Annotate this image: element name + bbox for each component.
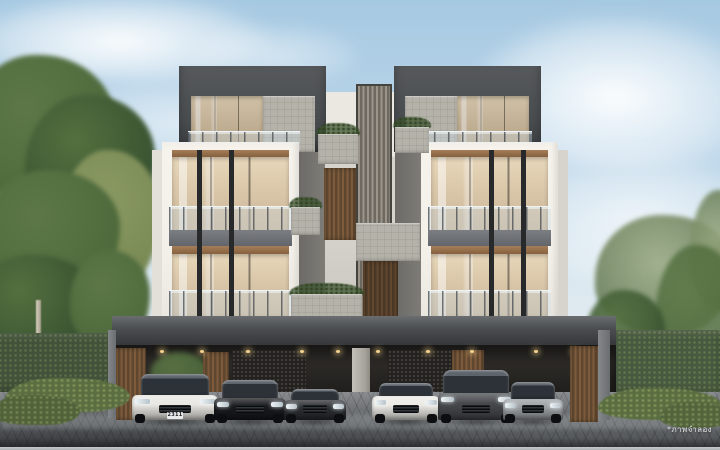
headlight-icon (441, 397, 454, 402)
car-wheel (135, 414, 145, 423)
car-grille (393, 405, 419, 413)
car-wheel (273, 414, 283, 423)
car-grille (462, 405, 491, 413)
car-1-white-luxury-sedan: 2311 (132, 374, 218, 422)
headlight-icon (200, 399, 215, 404)
car-wheel (375, 414, 385, 423)
headlight-icon (375, 400, 387, 405)
car-2-black-sedan (214, 380, 286, 422)
headlight-icon (550, 403, 560, 408)
watermark-text: *ภาพจำลอง (667, 423, 712, 436)
car-wheel (286, 414, 296, 423)
car-wheel (441, 414, 451, 423)
car-grille (236, 405, 263, 413)
car-wheel (217, 414, 227, 423)
car-grille (522, 405, 545, 413)
headlight-icon (286, 404, 297, 409)
car-grille (303, 405, 327, 413)
headlight-icon (271, 402, 283, 407)
car-4-white-supercar (372, 380, 440, 422)
headlight-icon (505, 403, 515, 408)
headlight-icon (217, 402, 229, 407)
car-wheel (427, 414, 437, 423)
cars-layer: 2311 (0, 0, 720, 450)
car-3-dark-sports-car (284, 386, 346, 422)
car-wheel (551, 414, 561, 423)
car-wheel (505, 414, 515, 423)
headlight-icon (333, 404, 344, 409)
headlight-icon (135, 399, 150, 404)
car-6-silver-coupe (503, 382, 563, 422)
scene-architectural-rendering: 2311 *ภาพจำลอง (0, 0, 720, 450)
license-plate: 2311 (167, 412, 183, 419)
headlight-icon (426, 400, 438, 405)
car-wheel (334, 414, 344, 423)
